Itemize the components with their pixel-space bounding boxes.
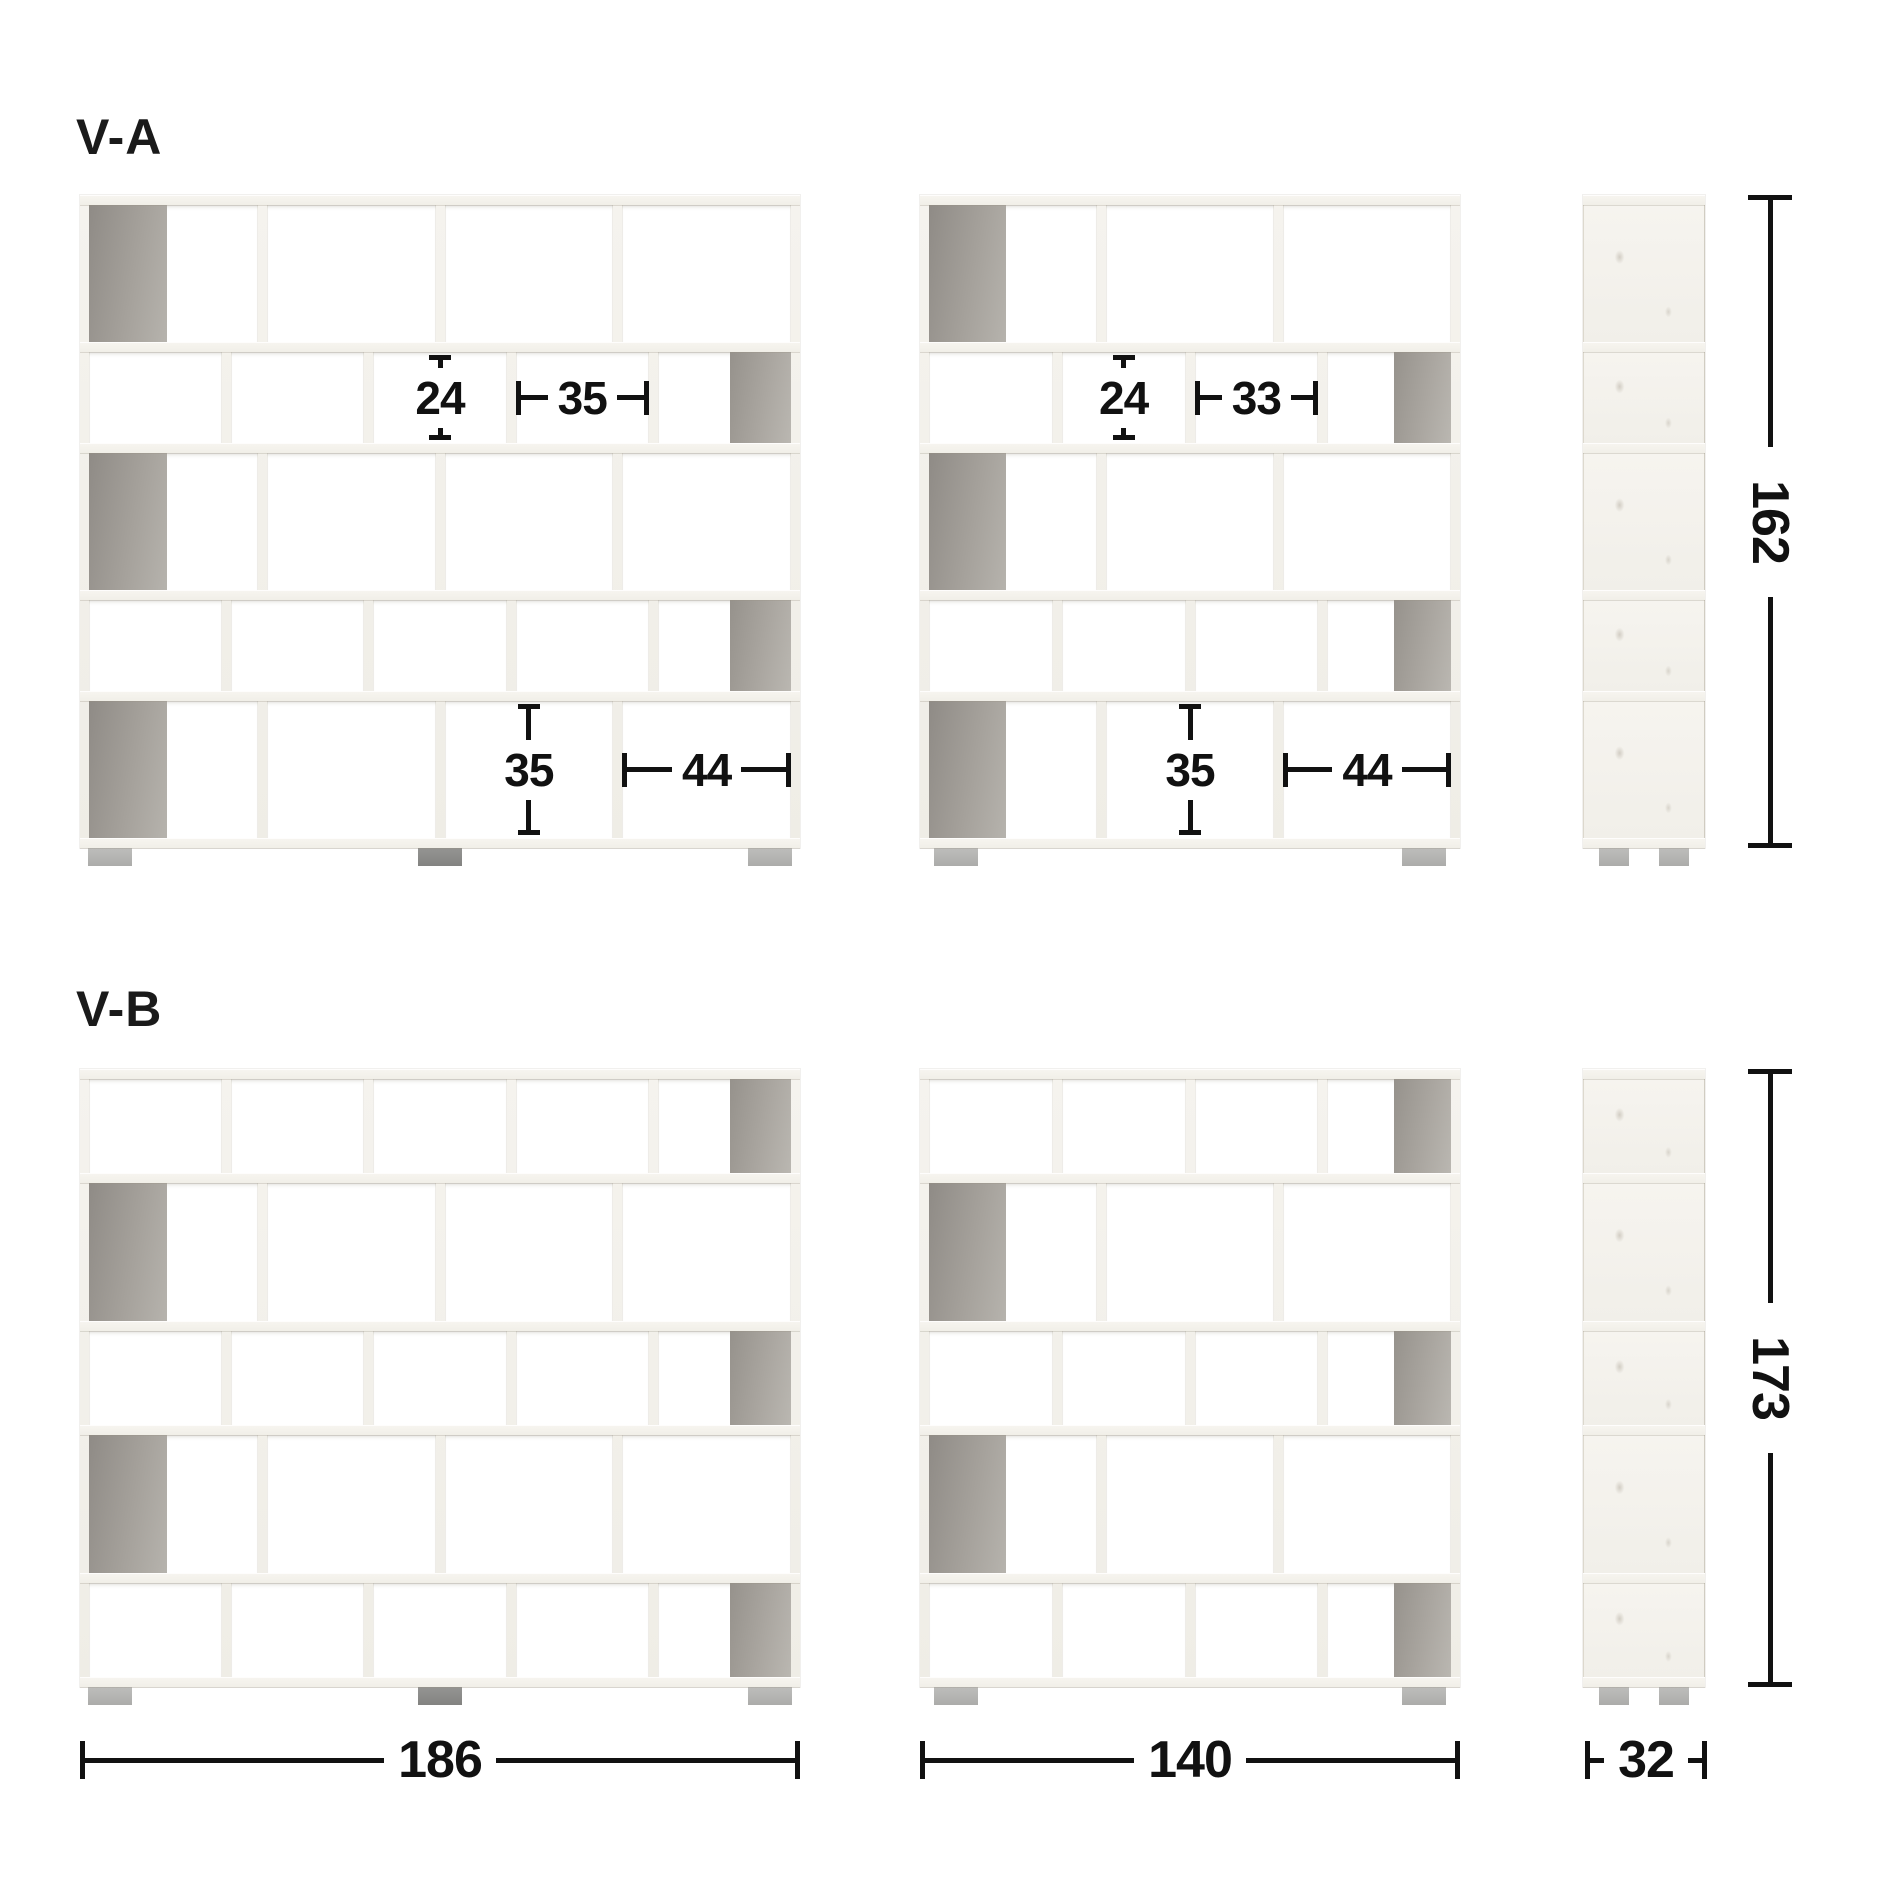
dimension-value: 186 [398,1734,482,1786]
shelf-row [80,453,800,590]
shelf-band [1583,1677,1705,1687]
shelf-cell [89,453,258,590]
va-side [1583,195,1705,848]
shelf-cell [1283,1435,1451,1573]
shelf-band [80,1321,800,1331]
shelf-band [80,590,800,600]
shelf-cell [1283,453,1451,590]
dimension-line [1402,767,1446,772]
shelf-cell [929,1079,1053,1173]
shelf-row [80,1079,800,1173]
dimension-line [1288,767,1332,772]
shelf-foot [748,1687,792,1705]
shelf-band [920,1321,1460,1331]
shelf-cell [373,1583,506,1677]
side-panel-section [1583,1079,1705,1173]
shelf-cell [89,701,258,838]
shelf-cell [929,352,1053,443]
vb-front-wide [80,1069,800,1687]
shelf-cell [929,205,1097,342]
cell-dimension-width: 44 [1283,744,1451,796]
back-panel [89,205,167,342]
shelf-cell [89,1079,222,1173]
shelf-cell [658,1583,791,1677]
shelf-foot [934,848,978,866]
dimension-cap [795,1741,800,1779]
back-panel [929,701,1006,838]
dimension-line [1768,200,1773,447]
dimension-line [1590,1758,1604,1763]
shelf-band [920,1425,1460,1435]
back-panel [730,600,791,691]
shelf-cell [445,453,614,590]
back-panel [89,453,167,590]
variant-a-label: V-A [76,112,162,162]
shelf-cell [1062,600,1186,691]
shelf-cell [231,1079,364,1173]
shelf-foot [1599,848,1629,866]
dimension-value: 33 [1232,375,1281,421]
shelf-band [80,838,800,848]
dimension-line [526,709,531,740]
shelf-row [80,1435,800,1573]
shelf-cell [267,701,436,838]
shelf-cell [929,453,1097,590]
shelf-cell [622,205,791,342]
shelf-cell [1106,453,1274,590]
dimension-line [85,1758,384,1763]
back-panel [929,453,1006,590]
dimension-cap [1748,843,1792,848]
shelf-cell [1195,600,1319,691]
shelf-foot [88,848,132,866]
dimension-value: 32 [1618,1734,1674,1786]
shelf-spec-sheet: V-A V-B 2435354424333544 162 173 186 140 [0,0,1898,1898]
shelf-foot [934,1687,978,1705]
side-panel-section [1583,1435,1705,1573]
shelf-band [1583,1321,1705,1331]
shelf-row [920,600,1460,691]
dimension-cap [1455,1741,1460,1779]
shelf-cell [622,1183,791,1321]
dimension-line [1688,1758,1702,1763]
shelf-band [80,1677,800,1687]
dimension-value: 24 [415,375,464,421]
dimension-value: 162 [1744,480,1796,564]
shelf-cell [658,600,791,691]
back-panel [929,205,1006,342]
dimension-value: 35 [558,375,607,421]
shelf-band [80,342,800,352]
shelf-cell [929,1331,1053,1425]
shelf-row [920,1079,1460,1173]
side-panel-section [1583,1183,1705,1321]
shelf-band [1583,1425,1705,1435]
side-panel-section [1583,1583,1705,1677]
dimension-line [1121,360,1126,368]
dimension-value: 173 [1744,1336,1796,1420]
shelf-band [1583,1573,1705,1583]
back-panel [929,1183,1006,1321]
shelf-band [1583,195,1705,205]
shelf-row [920,1583,1460,1677]
shelf-band [1583,1173,1705,1183]
cell-dimension-width: 35 [516,372,649,424]
back-panel [730,1583,791,1677]
shelf-cell [267,1183,436,1321]
dimension-value: 35 [504,747,553,793]
shelf-band [80,443,800,453]
shelf-cell [445,1435,614,1573]
side-panel-section [1583,453,1705,590]
cell-dimension-width: 44 [622,744,791,796]
shelf-band [920,1173,1460,1183]
shelf-band [1583,1069,1705,1079]
dimension-line [1246,1758,1455,1763]
shelf-cell [1283,205,1451,342]
shelf-band [80,691,800,701]
shelf-band [920,1677,1460,1687]
dimension-line [617,395,644,400]
dimension-line [1768,597,1773,844]
shelf-cell [622,1435,791,1573]
dimension-line [1291,395,1313,400]
shelf-band [1583,691,1705,701]
shelf-cell [929,600,1053,691]
shelf-band [920,838,1460,848]
back-panel [1394,1583,1451,1677]
back-panel [89,1435,167,1573]
dimension-line [438,428,443,436]
shelf-row [80,1583,800,1677]
shelf-cell [267,1435,436,1573]
shelf-cell [445,205,614,342]
shelf-foot [1659,848,1689,866]
dimension-line [526,800,531,831]
shelf-cell [231,1331,364,1425]
cell-dimension-height: 24 [1094,355,1154,440]
shelf-row [920,1435,1460,1573]
shelf-cell [89,600,222,691]
dimension-height-va: 162 [1746,195,1794,848]
shelf-cell [1327,600,1451,691]
cell-dimension-width: 33 [1195,372,1319,424]
shelf-cell [1327,352,1451,443]
side-panel-section [1583,600,1705,691]
shelf-cell [267,453,436,590]
shelf-foot [1402,848,1446,866]
vb-side [1583,1069,1705,1687]
shelf-band [920,443,1460,453]
side-panel-section [1583,1331,1705,1425]
shelf-row [80,1183,800,1321]
shelf-band [80,1425,800,1435]
dimension-value: 44 [682,747,731,793]
shelf-row [80,1331,800,1425]
dimension-value: 44 [1342,747,1391,793]
back-panel [89,701,167,838]
shelf-cell [1283,1183,1451,1321]
dimension-height-vb: 173 [1746,1069,1794,1687]
shelf-cell [516,1331,649,1425]
shelf-cell [231,600,364,691]
shelf-row [920,352,1460,443]
shelf-cell [1195,1079,1319,1173]
dimension-value-wrap: 173 [1728,1303,1812,1453]
shelf-cell [1106,1435,1274,1573]
shelf-cell [929,1435,1097,1573]
shelf-cell [373,1331,506,1425]
shelf-cell [1327,1079,1451,1173]
shelf-band [920,1573,1460,1583]
dimension-line [627,767,672,772]
back-panel [730,352,791,443]
dimension-cap [1446,753,1451,787]
shelf-cell [1195,1583,1319,1677]
shelf-cell [89,1583,222,1677]
shelf-cell [445,1183,614,1321]
shelf-foot [748,848,792,866]
shelf-band [1583,342,1705,352]
dimension-cap [1313,381,1318,415]
shelf-cell [267,205,436,342]
dimension-depth: 32 [1585,1732,1707,1788]
dimension-cap [1113,435,1135,440]
shelf-cell [1195,1331,1319,1425]
back-panel [1394,1079,1451,1173]
dimension-line [438,360,443,368]
dimension-value: 140 [1148,1734,1232,1786]
shelf-band [1583,838,1705,848]
shelf-cell [89,1435,258,1573]
shelf-row [920,1183,1460,1321]
dimension-cap [1179,830,1201,835]
side-panel-section [1583,205,1705,342]
back-panel [1394,1331,1451,1425]
dimension-cap [786,753,791,787]
dimension-line [1188,709,1193,740]
shelf-row [920,453,1460,590]
dimension-line [1768,1074,1773,1303]
back-panel [1394,352,1451,443]
dimension-line [925,1758,1134,1763]
shelf-band [1583,590,1705,600]
dimension-width-wide: 186 [80,1732,800,1788]
shelf-cell [929,1583,1053,1677]
dimension-value: 24 [1099,375,1148,421]
shelf-cell [1327,1331,1451,1425]
shelf-band [920,691,1460,701]
dimension-cap [518,830,540,835]
shelf-cell [1062,1583,1186,1677]
shelf-row [80,600,800,691]
dimension-line [1188,800,1193,831]
dimension-value-wrap: 162 [1728,447,1812,597]
dimension-line [1768,1453,1773,1682]
shelf-cell [516,600,649,691]
shelf-band [80,1573,800,1583]
shelf-cell [89,1331,222,1425]
dimension-line [1121,428,1126,436]
shelf-band [920,342,1460,352]
shelf-row [80,205,800,342]
va-front-wide: 24353544 [80,195,800,848]
dimension-value: 35 [1165,747,1214,793]
back-panel [929,1435,1006,1573]
dimension-line [521,395,548,400]
shelf-cell [89,205,258,342]
shelf-band [80,1173,800,1183]
side-panel-section [1583,701,1705,838]
shelf-cell [658,1331,791,1425]
back-panel [730,1079,791,1173]
dimension-line [1200,395,1222,400]
cell-dimension-height: 35 [499,704,559,835]
shelf-row [920,205,1460,342]
dimension-cap [1702,1741,1707,1779]
shelf-foot [1659,1687,1689,1705]
shelf-cell [231,1583,364,1677]
dimension-width-narrow: 140 [920,1732,1460,1788]
shelf-cell [231,352,364,443]
variant-b-label: V-B [76,984,162,1034]
back-panel [1394,600,1451,691]
cell-dimension-height: 35 [1160,704,1220,835]
shelf-band [80,195,800,205]
back-panel [730,1331,791,1425]
shelf-cell [658,1079,791,1173]
dimension-cap [644,381,649,415]
shelf-cell [516,1583,649,1677]
shelf-cell [373,1079,506,1173]
shelf-cell [1327,1583,1451,1677]
shelf-band [920,590,1460,600]
shelf-foot [1402,1687,1446,1705]
dimension-line [741,767,786,772]
shelf-cell [516,1079,649,1173]
shelf-row [920,1331,1460,1425]
shelf-cell [658,352,791,443]
shelf-cell [1106,1183,1274,1321]
shelf-band [920,1069,1460,1079]
shelf-cell [89,1183,258,1321]
shelf-cell [1062,1331,1186,1425]
dimension-cap [429,435,451,440]
shelf-band [920,195,1460,205]
shelf-cell [373,600,506,691]
shelf-band [80,1069,800,1079]
shelf-foot [418,1687,462,1705]
shelf-foot [1599,1687,1629,1705]
dimension-cap [1748,1682,1792,1687]
back-panel [89,1183,167,1321]
vb-front-narrow [920,1069,1460,1687]
shelf-cell [1062,1079,1186,1173]
side-panel-section [1583,352,1705,443]
shelf-foot [88,1687,132,1705]
cell-dimension-height: 24 [410,355,470,440]
shelf-cell [929,701,1097,838]
shelf-foot [418,848,462,866]
shelf-cell [929,1183,1097,1321]
shelf-cell [622,453,791,590]
shelf-band [1583,443,1705,453]
shelf-cell [89,352,222,443]
shelf-cell [1106,205,1274,342]
va-front-narrow: 24333544 [920,195,1460,848]
dimension-line [496,1758,795,1763]
